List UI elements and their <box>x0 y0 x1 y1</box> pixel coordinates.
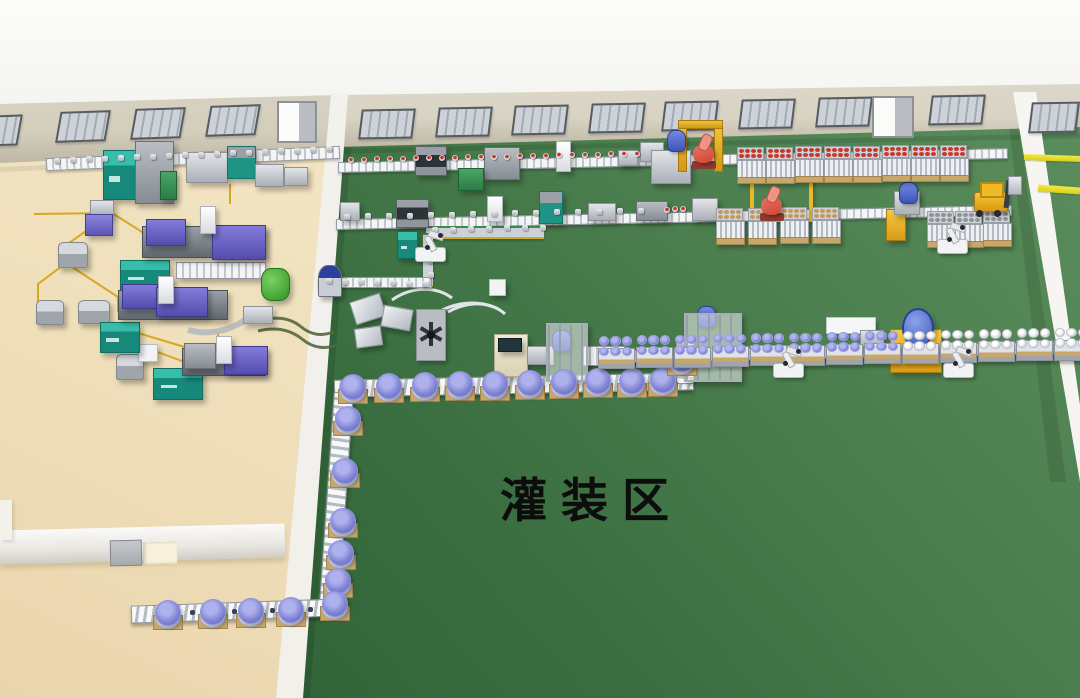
red-capped-item <box>595 152 601 158</box>
drum <box>331 458 357 488</box>
window-icon <box>511 105 569 136</box>
conveyor-item <box>449 212 455 218</box>
red-capped-item <box>672 206 678 212</box>
conveyor-item <box>540 225 546 231</box>
twin-cabinet <box>539 191 563 224</box>
red-capped-item <box>387 156 393 162</box>
drum-pallet-group <box>864 331 899 362</box>
conveyor-item <box>407 213 413 219</box>
red-capped-item <box>504 154 510 160</box>
window-icon <box>55 110 111 143</box>
conveyor-clamp <box>270 608 275 613</box>
loaded-pallet <box>824 146 851 181</box>
red-capped-item <box>530 153 536 159</box>
loaded-pallet <box>882 145 909 180</box>
conveyor-item <box>554 209 560 215</box>
conveyor-item <box>166 153 172 159</box>
red-capped-item <box>664 207 670 213</box>
drum-pallet-group <box>598 336 633 367</box>
drum <box>481 371 507 401</box>
loaded-pallet <box>911 145 938 180</box>
door-panel <box>110 540 143 567</box>
takeout-robot <box>158 276 174 304</box>
red-capped-item <box>543 153 549 159</box>
granulator <box>261 268 290 301</box>
guide-chute <box>354 325 384 349</box>
gantry-beam <box>678 120 723 129</box>
drum <box>237 598 263 628</box>
drum <box>277 597 303 627</box>
back-door <box>872 96 914 138</box>
conveyor-item <box>406 281 412 287</box>
drum <box>339 374 365 404</box>
molding-machine-housing <box>212 225 266 260</box>
conveyor-item <box>102 156 108 162</box>
drum-pallet-group <box>636 335 671 366</box>
conveyor-item <box>512 210 518 216</box>
drum <box>327 540 353 570</box>
aux-machine <box>284 167 308 186</box>
drum <box>321 591 347 621</box>
conveyor-item <box>198 152 204 158</box>
takeout-robot <box>216 336 232 364</box>
window-icon <box>1028 102 1080 134</box>
loaded-pallet <box>812 207 839 242</box>
conveyor-item <box>491 211 497 217</box>
conveyor-item <box>358 279 364 285</box>
conveyor-item <box>54 158 60 164</box>
drum <box>584 368 610 398</box>
conveyor-item <box>182 152 188 158</box>
forklift <box>972 174 1020 222</box>
window-icon <box>588 103 646 134</box>
conveyor-item <box>390 280 396 286</box>
conveyor-item <box>575 209 581 215</box>
conveyor-item <box>428 272 434 278</box>
drum <box>334 406 360 436</box>
drum <box>154 600 180 630</box>
conveyor-item <box>118 155 124 161</box>
red-capped-item <box>634 151 640 157</box>
conveyor-item <box>504 225 510 231</box>
conveyor-item <box>326 278 332 284</box>
tilted-belt <box>458 168 484 191</box>
drum <box>516 370 542 400</box>
white-robot-arm <box>412 232 448 262</box>
drum <box>550 369 576 399</box>
conveyor-item <box>522 225 528 231</box>
factory-3d-render: 灌装区 <box>0 0 1080 698</box>
drum-pallet-group <box>712 334 747 365</box>
mixer-machine <box>36 300 64 325</box>
loaded-pallet <box>795 146 822 181</box>
labeling-machine <box>415 146 447 176</box>
loaded-pallet <box>716 208 743 243</box>
small-machine <box>340 202 360 221</box>
drum-pallet-group <box>1016 328 1051 359</box>
red-capped-item <box>400 156 406 162</box>
conveyor-item <box>450 227 456 233</box>
red-capped-item <box>491 154 497 160</box>
case-packer <box>186 152 228 183</box>
drum <box>199 599 225 629</box>
conveyor-item <box>262 149 268 155</box>
back-door <box>277 101 317 143</box>
loaded-pallet <box>737 147 764 182</box>
filling-area-label: 灌装区 <box>500 462 760 531</box>
blue-barrel <box>667 130 686 152</box>
drum <box>446 371 472 401</box>
red-capped-item <box>361 157 367 163</box>
molding-machine-housing <box>122 284 158 309</box>
conveyor-clamp <box>308 607 313 612</box>
transfer-belt <box>176 262 266 279</box>
loaded-pallet <box>766 147 793 182</box>
window-icon <box>358 109 416 140</box>
drum <box>375 373 401 403</box>
loaded-pallet <box>853 146 880 181</box>
red-capped-item <box>621 151 627 157</box>
capping-machine <box>484 147 520 180</box>
window-icon <box>815 97 873 128</box>
conveyor-item <box>342 279 348 285</box>
drum-pallet-group <box>826 332 861 363</box>
conveyor-item <box>596 209 602 215</box>
takeout-robot <box>200 206 216 234</box>
control-screen <box>498 338 522 352</box>
scara-robot <box>418 320 444 348</box>
red-capped-item <box>439 155 445 161</box>
red-capped-item <box>680 206 686 212</box>
drum-pallet-group <box>674 335 709 366</box>
white-robot-arm <box>770 348 806 378</box>
white-robot-arm <box>940 348 976 378</box>
window-icon <box>928 95 986 126</box>
conveyor-item <box>326 146 332 152</box>
conveyor-item <box>386 213 392 219</box>
drum-pallet-group <box>1054 328 1080 359</box>
conveyor-item <box>294 148 300 154</box>
dosing-unit <box>85 214 113 236</box>
red-capped-item <box>582 152 588 158</box>
conveyor-item <box>638 208 644 214</box>
drum <box>329 508 355 538</box>
conveyor-item <box>246 150 252 156</box>
mixer-machine <box>58 242 88 268</box>
conveyor-item <box>374 280 380 286</box>
window-icon <box>130 107 186 140</box>
drum <box>618 368 644 398</box>
conveyor-item <box>230 150 236 156</box>
white-robot-arm <box>934 224 970 254</box>
incline-conveyor <box>160 171 177 200</box>
machine <box>692 198 718 221</box>
window-icon <box>435 107 493 138</box>
red-palletizing-robot <box>688 134 720 170</box>
red-capped-item <box>478 154 484 160</box>
conveyor-item <box>486 226 492 232</box>
small-machine <box>138 344 158 362</box>
conveyor-item <box>470 211 476 217</box>
conveyor-item <box>70 157 76 163</box>
conveyor-item <box>278 148 284 154</box>
conveyor-item <box>344 214 350 220</box>
aux-machine <box>255 164 284 187</box>
conveyor-item <box>134 154 140 160</box>
drum-pallet-group <box>978 329 1013 360</box>
window-icon <box>205 104 261 137</box>
molding-machine-housing <box>184 343 216 369</box>
red-capped-item <box>348 157 354 163</box>
red-palletizing-robot <box>756 186 788 222</box>
conveyor-item <box>150 154 156 160</box>
conveyor-item <box>617 208 623 214</box>
inner-low-wall-corner <box>0 500 12 540</box>
conveyor-item <box>428 212 434 218</box>
red-capped-item <box>452 155 458 161</box>
conveyor-item <box>86 156 92 162</box>
machine <box>588 203 616 221</box>
drum-pallet-group <box>902 331 937 362</box>
loaded-pallet <box>940 145 967 180</box>
molding-machine-housing <box>146 219 186 246</box>
blue-barrel <box>899 182 918 204</box>
inspection-machine <box>487 196 503 222</box>
conveyor-item <box>422 281 428 287</box>
mixer-machine <box>78 300 110 324</box>
conveyor-item <box>468 226 474 232</box>
conveyor-item <box>533 210 539 216</box>
small-machine <box>489 279 506 296</box>
conveyor-item <box>310 147 316 153</box>
conveyor-clamp <box>190 610 195 615</box>
drum <box>411 372 437 402</box>
door-opening <box>143 542 178 565</box>
conveyor-item <box>365 213 371 219</box>
work-table <box>243 306 273 324</box>
window-icon <box>738 99 796 130</box>
conveyor-item <box>214 151 220 157</box>
chiller-unit <box>100 322 140 353</box>
